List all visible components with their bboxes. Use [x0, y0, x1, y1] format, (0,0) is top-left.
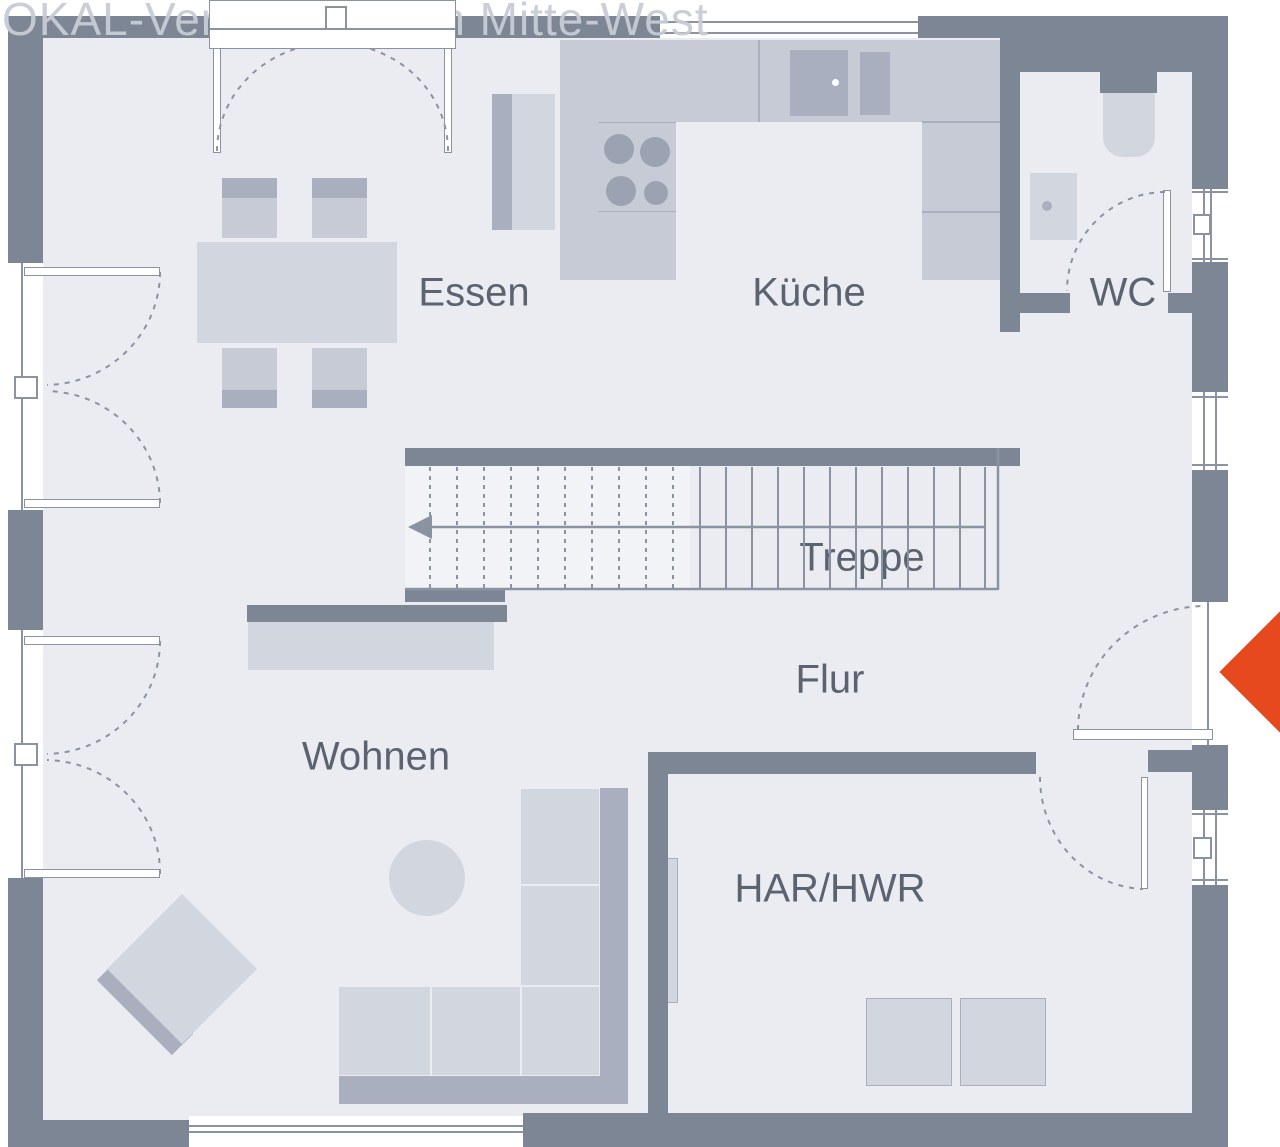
plan-overlay — [0, 0, 1280, 1147]
floor-plan-canvas: Essen Küche WC Treppe Flur Wohnen HAR/HW… — [0, 0, 1280, 1147]
door-handle — [325, 6, 347, 30]
